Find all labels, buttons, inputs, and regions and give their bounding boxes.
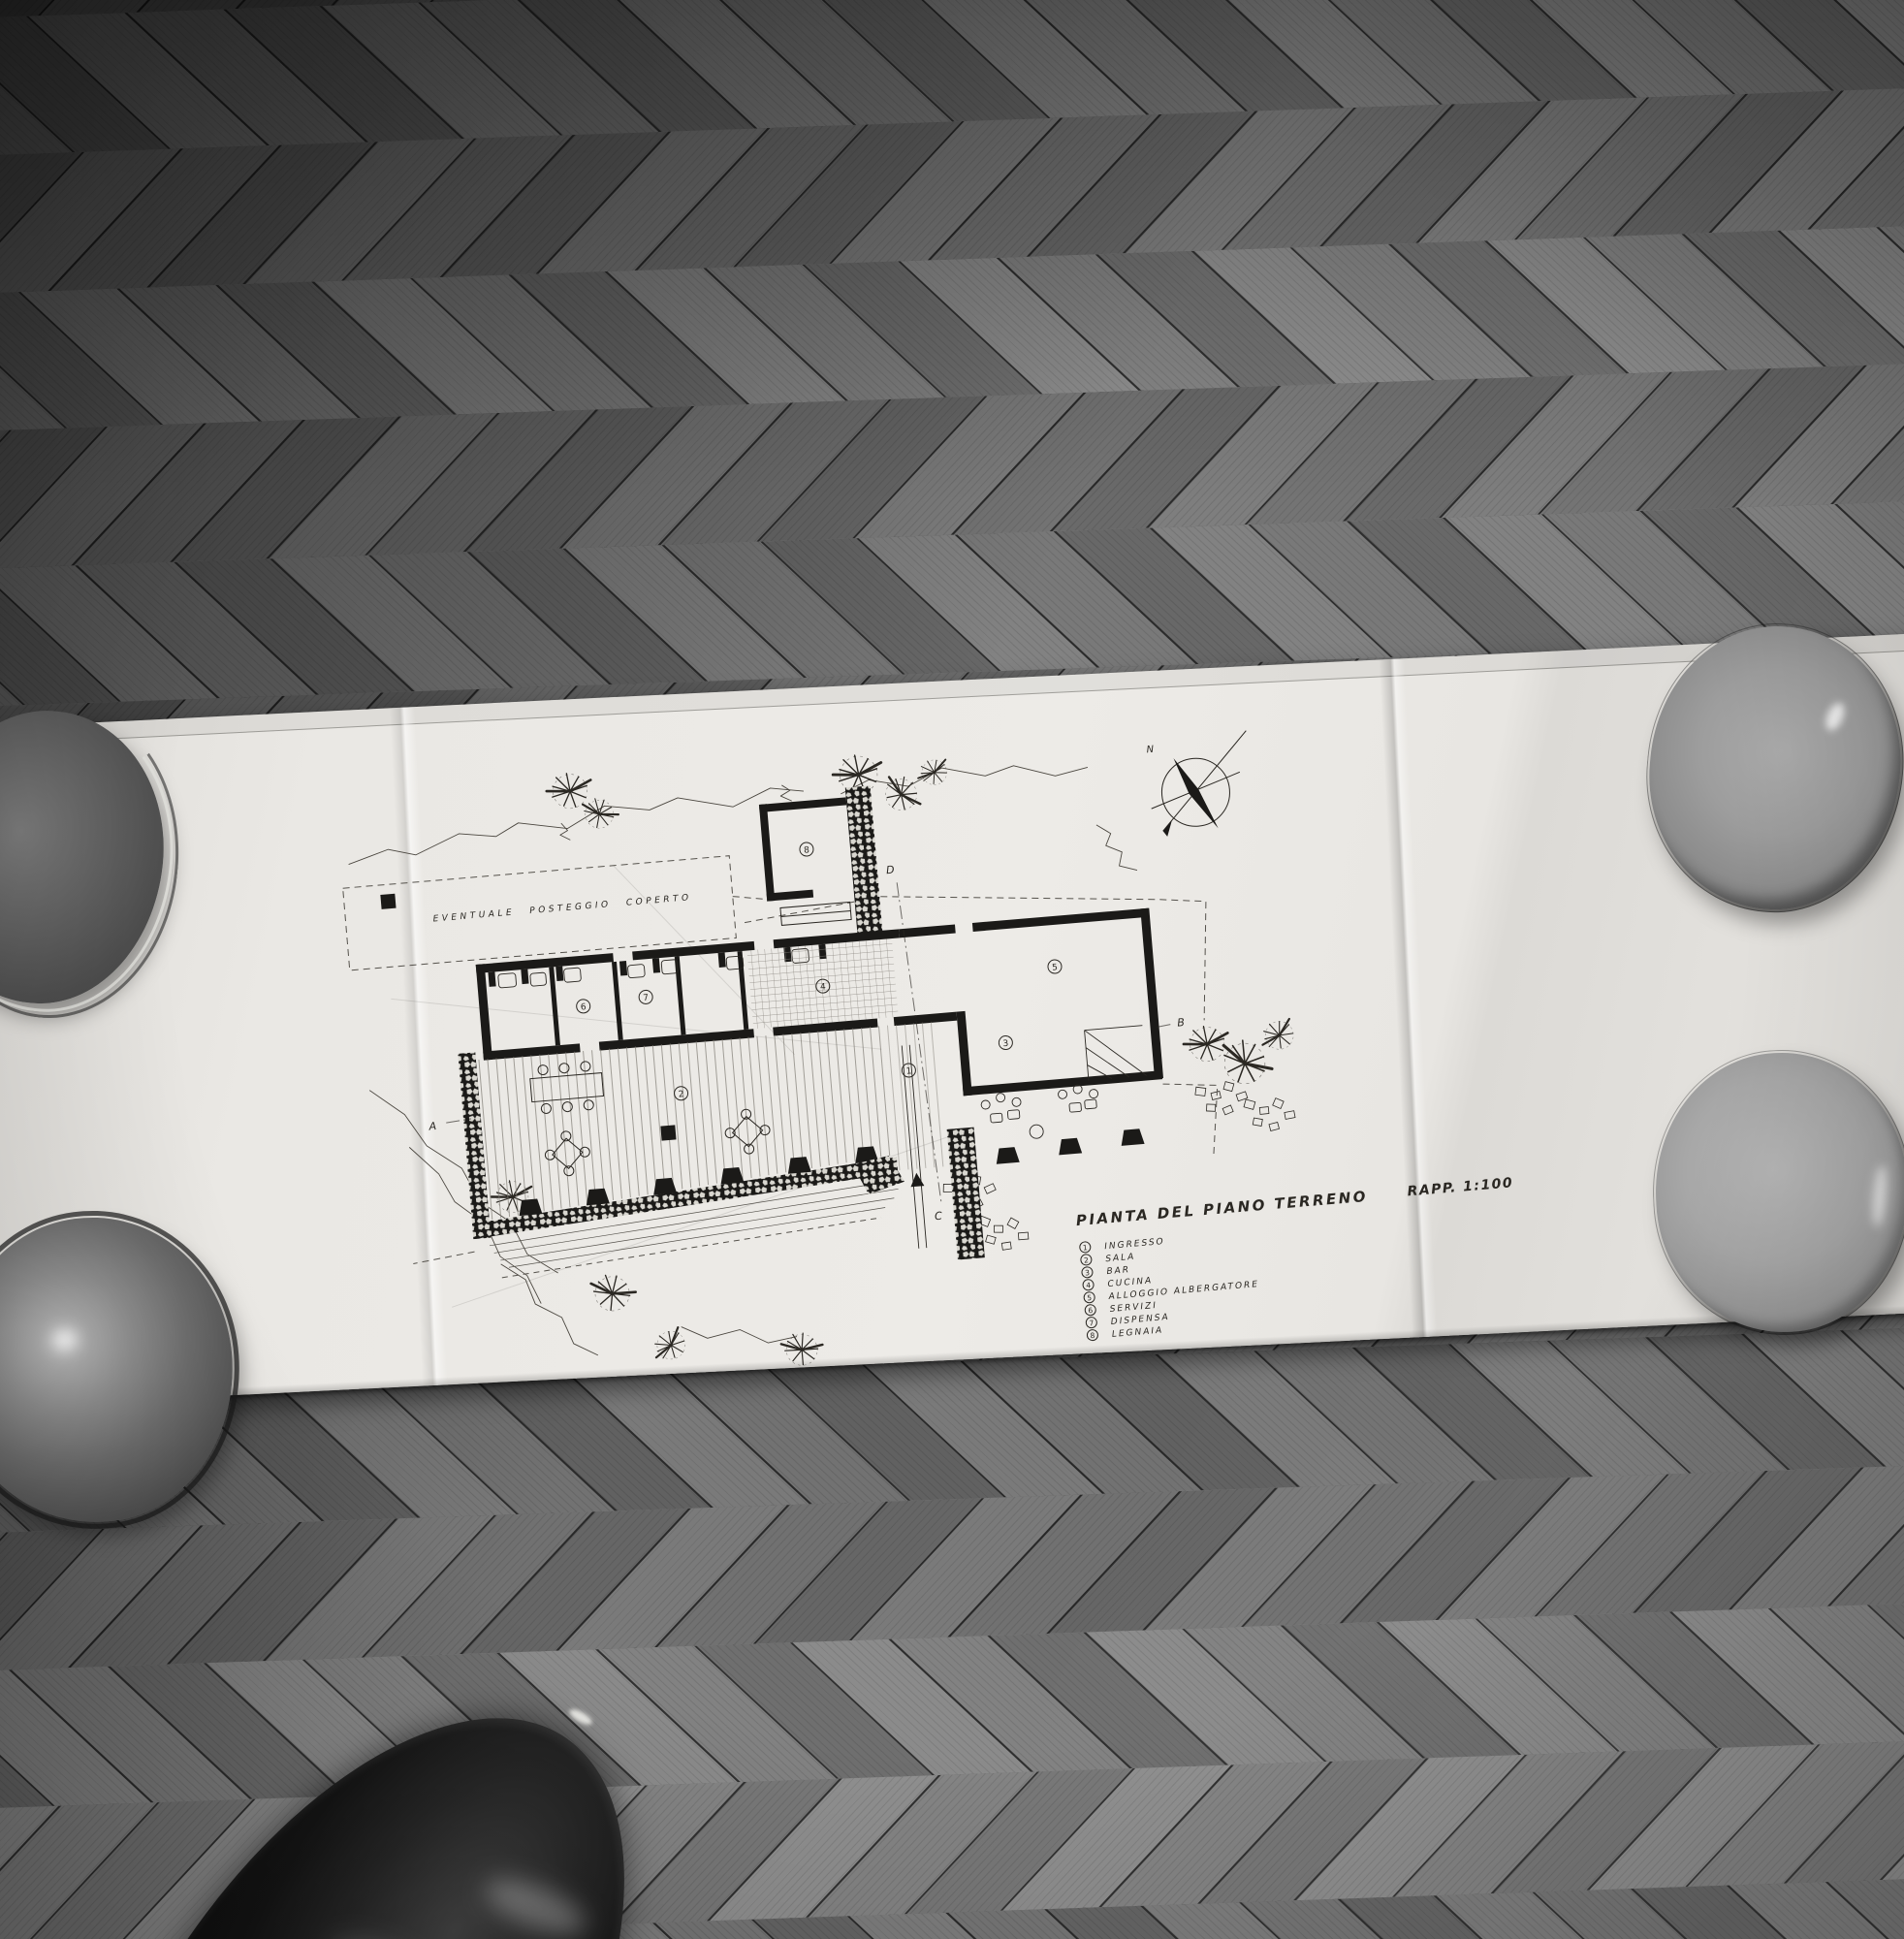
section-label-d: D bbox=[886, 864, 896, 877]
svg-text:7: 7 bbox=[643, 994, 650, 1003]
svg-text:SALA: SALA bbox=[1105, 1253, 1136, 1265]
section-label-c: C bbox=[935, 1210, 943, 1224]
svg-text:5: 5 bbox=[1052, 963, 1059, 972]
svg-text:BAR: BAR bbox=[1106, 1265, 1130, 1277]
svg-text:8: 8 bbox=[1090, 1331, 1095, 1340]
svg-text:6: 6 bbox=[1088, 1306, 1094, 1315]
svg-text:3: 3 bbox=[1002, 1039, 1009, 1049]
plan-scale: RAPP. 1:100 bbox=[1407, 1175, 1514, 1199]
north-compass: N bbox=[1146, 731, 1254, 838]
floor-plan-drawing: EVENTUALE POSTEGGIO COPERTO bbox=[314, 673, 1575, 1412]
svg-text:6: 6 bbox=[581, 1002, 587, 1012]
svg-text:SERVIZI: SERVIZI bbox=[1109, 1301, 1158, 1315]
section-label-b: B bbox=[1177, 1016, 1186, 1030]
svg-text:2: 2 bbox=[678, 1090, 684, 1099]
svg-text:CUCINA: CUCINA bbox=[1107, 1276, 1153, 1289]
drawing-sheet: EVENTUALE POSTEGGIO COPERTO bbox=[0, 631, 1904, 1408]
svg-text:4: 4 bbox=[1086, 1281, 1092, 1289]
svg-text:1: 1 bbox=[905, 1066, 912, 1076]
photograph: EVENTUALE POSTEGGIO COPERTO bbox=[0, 0, 1904, 1939]
north-label: N bbox=[1146, 745, 1155, 756]
svg-text:8: 8 bbox=[804, 845, 810, 855]
svg-text:LEGNAIA: LEGNAIA bbox=[1112, 1325, 1164, 1339]
svg-text:1: 1 bbox=[1083, 1243, 1089, 1252]
parking-column bbox=[380, 894, 396, 909]
plan-legend: 1INGRESSO 2SALA 3BAR 4CUCINA 5ALLOGGIO A… bbox=[1079, 1227, 1262, 1342]
svg-text:4: 4 bbox=[820, 982, 827, 992]
svg-text:2: 2 bbox=[1084, 1256, 1090, 1264]
parking-note: EVENTUALE POSTEGGIO COPERTO bbox=[432, 893, 692, 924]
section-label-a: A bbox=[428, 1120, 437, 1133]
svg-text:INGRESSO: INGRESSO bbox=[1104, 1237, 1165, 1252]
svg-text:7: 7 bbox=[1089, 1319, 1095, 1327]
plan-title: PIANTA DEL PIANO TERRENO bbox=[1075, 1188, 1368, 1229]
svg-text:3: 3 bbox=[1085, 1268, 1091, 1277]
svg-text:5: 5 bbox=[1087, 1293, 1093, 1302]
